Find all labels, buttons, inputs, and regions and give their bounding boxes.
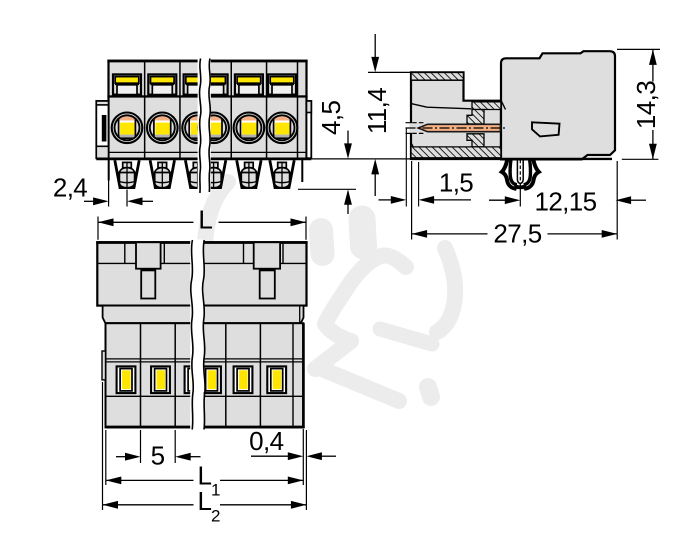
svg-text:2,4: 2,4	[53, 173, 87, 203]
svg-text:12,15: 12,15	[534, 187, 596, 217]
svg-text:1: 1	[211, 480, 220, 499]
svg-text:14,3: 14,3	[631, 81, 661, 129]
svg-text:L: L	[198, 205, 212, 235]
svg-text:1,5: 1,5	[439, 168, 473, 198]
svg-text:L: L	[198, 486, 212, 516]
svg-text:4,5: 4,5	[316, 100, 346, 134]
svg-text:11,4: 11,4	[362, 88, 392, 134]
svg-text:5: 5	[151, 441, 165, 471]
svg-text:0,4: 0,4	[249, 426, 283, 456]
svg-text:27,5: 27,5	[493, 218, 541, 248]
svg-text:2: 2	[211, 507, 220, 526]
